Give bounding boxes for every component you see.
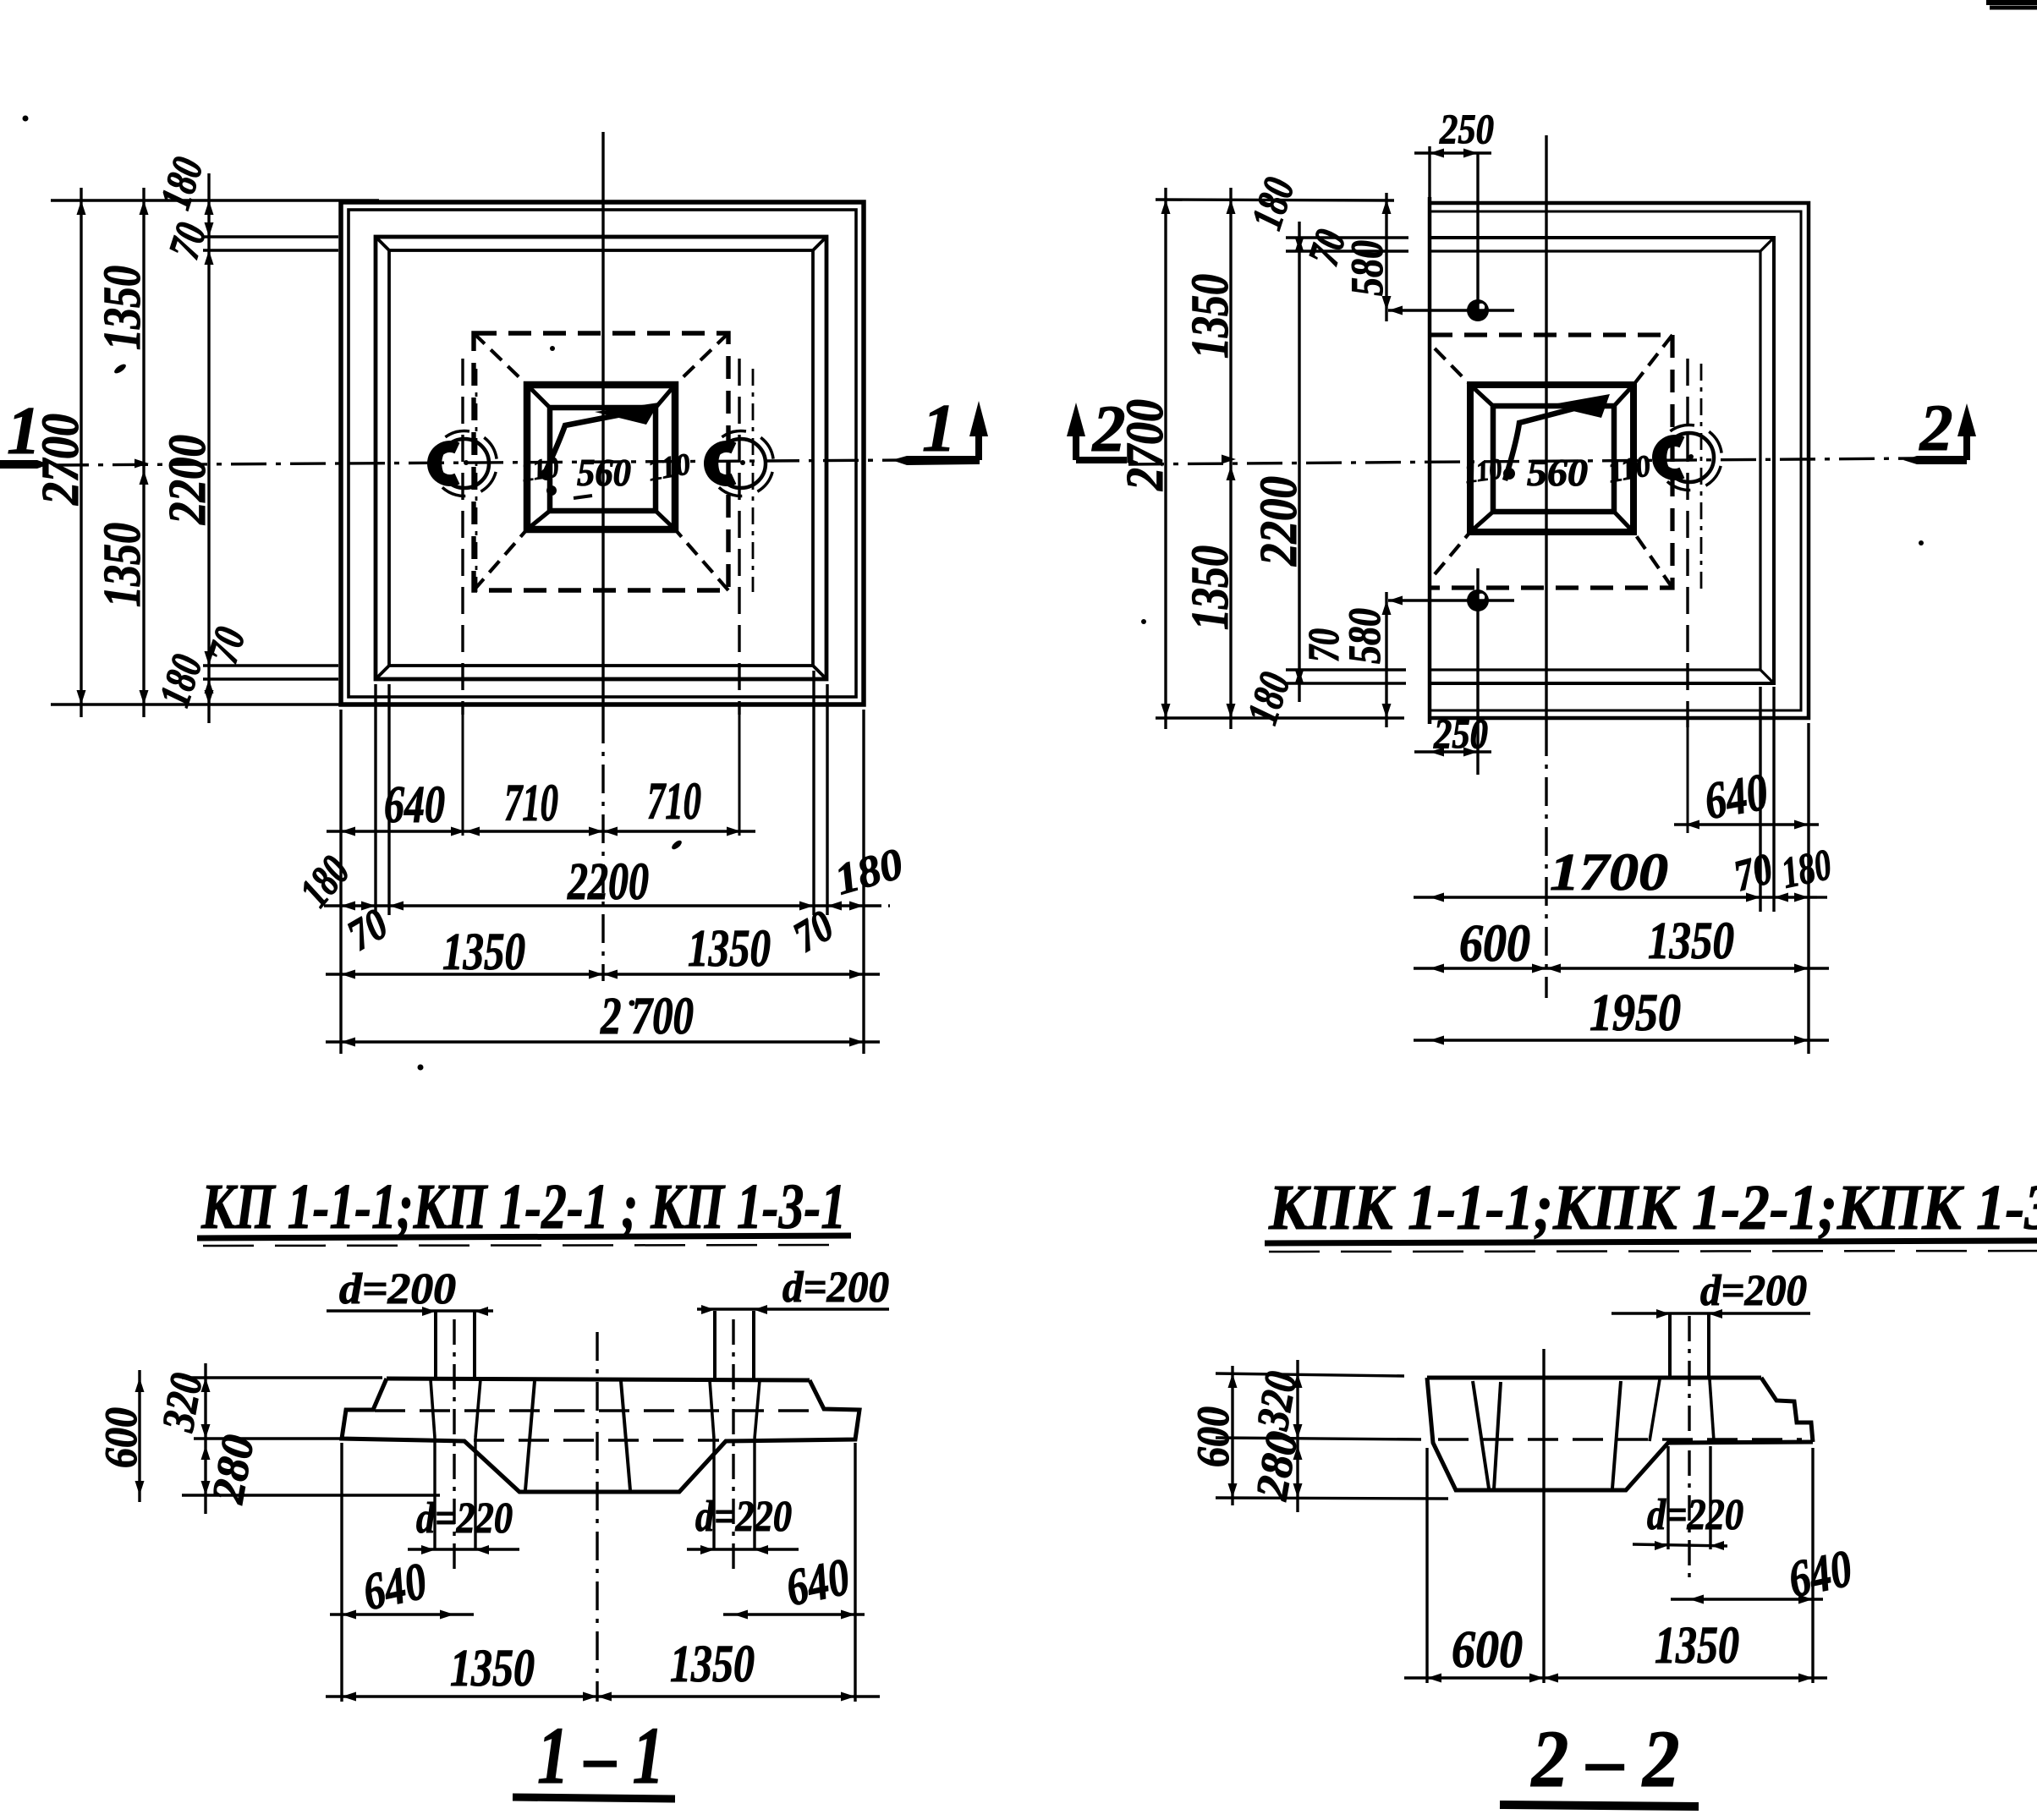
svg-text:1350: 1350 <box>442 924 525 981</box>
svg-text:1350: 1350 <box>688 920 771 978</box>
svg-text:110: 110 <box>1463 453 1504 490</box>
svg-text:640: 640 <box>1700 763 1772 831</box>
svg-text:110: 110 <box>1606 448 1653 489</box>
svg-text:640: 640 <box>384 776 445 834</box>
svg-text:560: 560 <box>1527 451 1588 494</box>
svg-text:d=220: d=220 <box>695 1493 792 1541</box>
svg-text:2 – 2: 2 – 2 <box>1530 1713 1680 1804</box>
svg-text:КП 1-1-1;КП 1-2-1 ; КП 1-3-1: КП 1-1-1;КП 1-2-1 ; КП 1-3-1 <box>200 1171 846 1242</box>
svg-text:d=200: d=200 <box>1700 1267 1807 1315</box>
svg-text:580: 580 <box>1342 240 1392 296</box>
svg-text:1700: 1700 <box>1550 844 1668 902</box>
svg-text:2700: 2700 <box>32 414 90 506</box>
svg-text:2200: 2200 <box>159 435 217 525</box>
svg-text:1 – 1: 1 – 1 <box>537 1710 664 1801</box>
svg-text:d=220: d=220 <box>1647 1491 1743 1539</box>
svg-text:1350: 1350 <box>1182 545 1239 630</box>
svg-text:110: 110 <box>519 452 561 488</box>
svg-text:1350: 1350 <box>670 1636 755 1693</box>
svg-text:600: 600 <box>1452 1621 1523 1679</box>
svg-text:d=220: d=220 <box>416 1494 513 1543</box>
svg-text:320: 320 <box>152 1369 212 1435</box>
svg-text:d=200: d=200 <box>339 1265 456 1313</box>
svg-text:1350: 1350 <box>450 1640 535 1697</box>
svg-text:600: 600 <box>1188 1406 1238 1467</box>
svg-text:710: 710 <box>647 773 701 831</box>
svg-text:КПК 1-1-1;КПК 1-2-1;КПК 1-3-1: КПК 1-1-1;КПК 1-2-1;КПК 1-3-1 <box>1268 1172 2037 1243</box>
svg-text:600: 600 <box>96 1407 146 1468</box>
svg-text:600: 600 <box>1459 915 1530 973</box>
svg-text:2200: 2200 <box>1250 476 1308 567</box>
svg-text:250: 250 <box>1433 710 1488 757</box>
svg-text:2: 2 <box>1919 391 1953 464</box>
svg-text:1: 1 <box>922 392 956 466</box>
svg-text:320: 320 <box>1247 1368 1307 1434</box>
svg-text:1950: 1950 <box>1590 984 1681 1042</box>
svg-text:1350: 1350 <box>1182 274 1239 359</box>
svg-text:1350: 1350 <box>94 266 151 350</box>
svg-text:2700: 2700 <box>1117 399 1174 491</box>
svg-text:250: 250 <box>1439 105 1494 152</box>
svg-text:1350: 1350 <box>1648 913 1734 970</box>
svg-text:710: 710 <box>504 775 558 832</box>
svg-text:2 700: 2 700 <box>600 988 694 1045</box>
svg-text:70: 70 <box>1300 628 1348 662</box>
svg-text:1350: 1350 <box>94 523 151 607</box>
svg-text:180: 180 <box>1777 841 1836 898</box>
svg-text:1350: 1350 <box>1655 1617 1739 1675</box>
svg-text:d=200: d=200 <box>782 1264 889 1312</box>
svg-text:110: 110 <box>645 447 693 487</box>
svg-text:2200: 2200 <box>567 853 649 911</box>
